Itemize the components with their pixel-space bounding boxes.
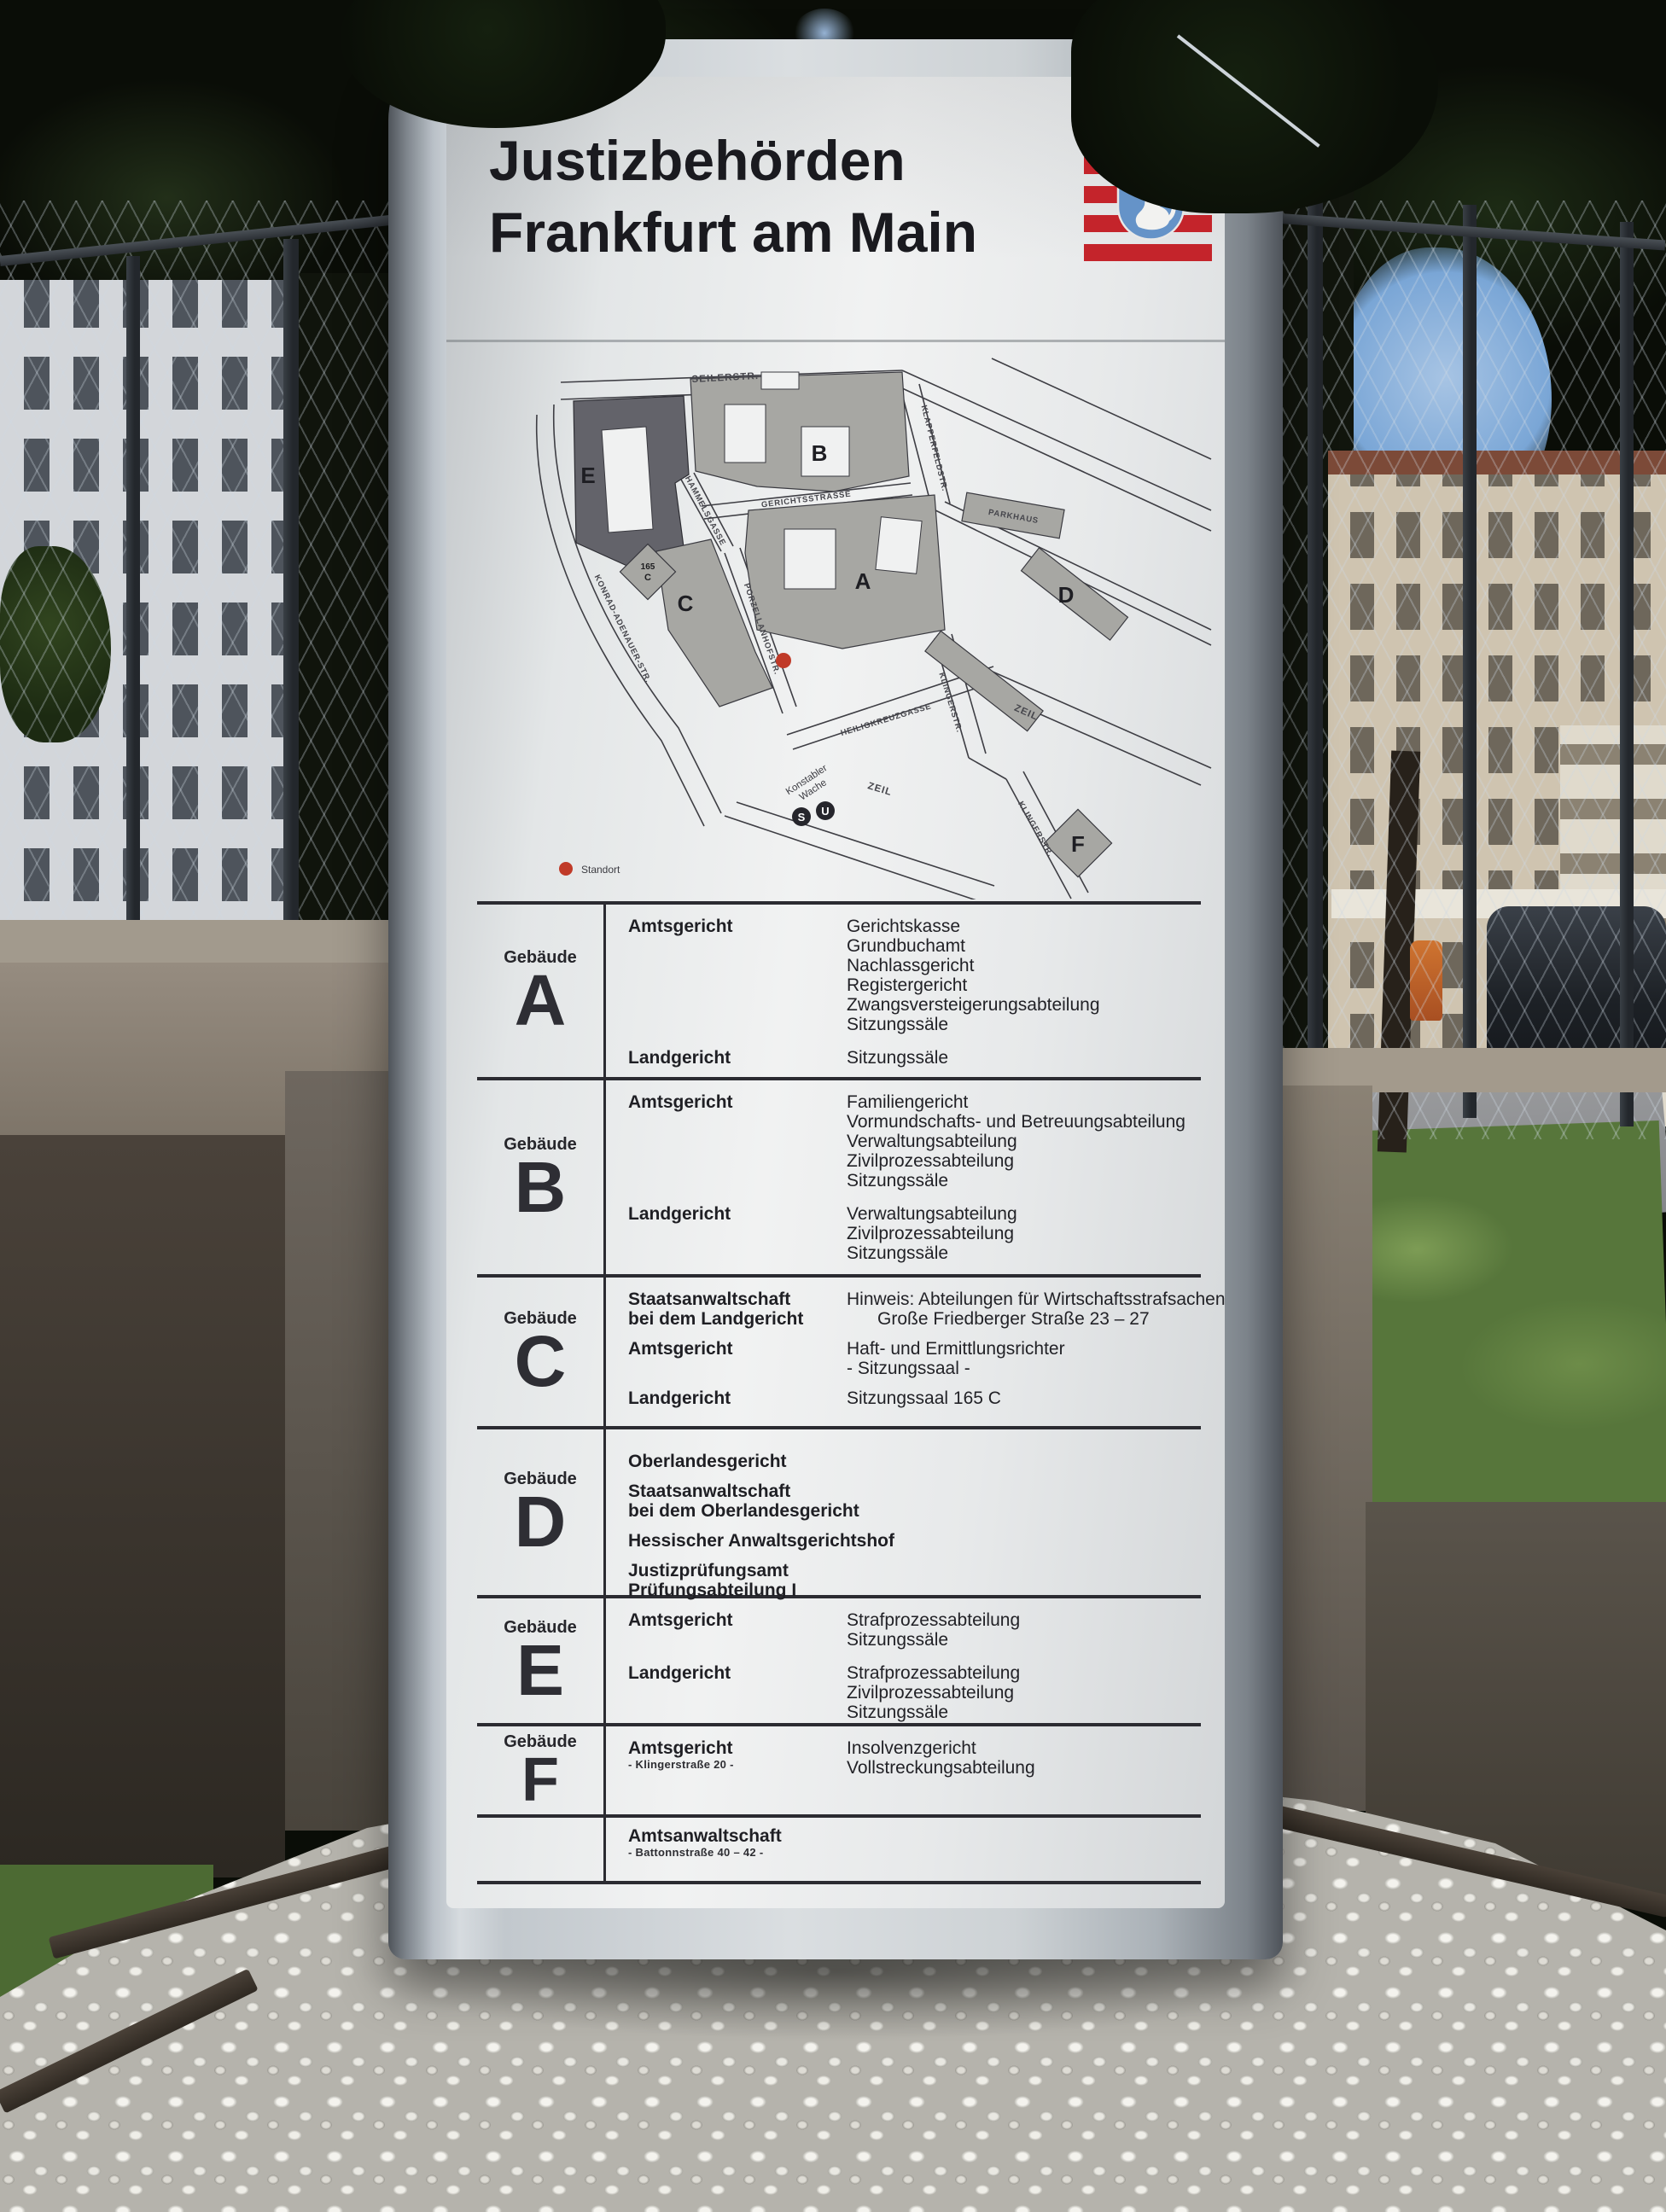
directory-row-f: Gebäude F Amtsgericht - Klingerstraße 20… <box>477 1723 1201 1814</box>
court-address: - Battonnstraße 40 – 42 - <box>628 1846 987 1860</box>
fence-post <box>1620 222 1634 1126</box>
department-item: Zivilprozessabteilung <box>847 1683 1201 1703</box>
department-item: Strafprozessabteilung <box>847 1663 1201 1683</box>
department-item: Sitzungssäle <box>847 1015 1201 1034</box>
site-map: E B A C D F 165 C SEILERSTR. KLAPPERFELD… <box>501 348 1213 899</box>
legend-standort-dot <box>559 862 573 876</box>
department-item: Strafprozessabteilung <box>847 1610 1201 1630</box>
court-label: Staatsanwaltschaft <box>628 1481 847 1501</box>
building-letter: D <box>515 1489 567 1555</box>
building-letter: A <box>515 968 567 1033</box>
directory-row-a: Gebäude A Amtsgericht Gerichtskasse Grun… <box>477 901 1201 1077</box>
department-item: - Sitzungssaal - <box>847 1359 1226 1378</box>
court-label: Amtsgericht <box>628 1092 847 1112</box>
map-street-klapperfeldstr: KLAPPERFELDSTR. <box>919 405 950 492</box>
building-letter: F <box>521 1752 559 1808</box>
court-label: Amtsanwaltschaft <box>628 1826 987 1846</box>
legend-standort-label: Standort <box>581 864 620 876</box>
department-item: Vollstreckungsabteilung <box>847 1758 1201 1778</box>
department-item: Sitzungssäle <box>847 1048 1201 1068</box>
map-label-b: B <box>812 440 828 466</box>
building-letter: E <box>516 1638 564 1703</box>
court-address: - Klingerstraße 20 - <box>628 1758 847 1772</box>
court-label: Amtsgericht <box>628 1738 847 1758</box>
department-item: Insolvenzgericht <box>847 1738 1201 1758</box>
department-item: Vormundschafts- und Betreuungsabteilung <box>847 1112 1201 1132</box>
department-item: Registergericht <box>847 975 1201 995</box>
department-item: Sitzungssaal 165 C <box>847 1388 1226 1408</box>
building-letter-cell <box>477 1818 606 1881</box>
department-item: Sitzungssäle <box>847 1243 1201 1263</box>
department-item: Sitzungssäle <box>847 1171 1201 1190</box>
map-label-f: F <box>1071 831 1085 857</box>
court-label: Amtsgericht <box>628 1339 847 1359</box>
map-street-hammelsgasse: HAMMELSGASSE <box>683 474 727 547</box>
map-label-a: A <box>855 568 871 594</box>
court-label: Landgericht <box>628 1663 847 1683</box>
court-label: bei dem Oberlandesgericht <box>628 1501 847 1521</box>
sign-title-line2: Frankfurt am Main <box>489 196 977 268</box>
map-street-heiligkreuzgasse: HEILIGKREUZGASSE <box>840 701 933 738</box>
court-label: bei dem Landgericht <box>628 1309 847 1329</box>
photo-scene: Justizbehörden Frankfurt am Main HESSEN <box>0 0 1666 2212</box>
department-item: Hinweis: Abteilungen für Wirtschaftsstra… <box>847 1289 1226 1309</box>
building-letter-cell: Gebäude C <box>477 1278 606 1426</box>
building-directory: Gebäude A Amtsgericht Gerichtskasse Grun… <box>477 901 1201 1884</box>
building-letter-cell: Gebäude A <box>477 905 606 1077</box>
building-letter-cell: Gebäude E <box>477 1598 606 1723</box>
building-letter: B <box>515 1155 567 1220</box>
court-label: Landgericht <box>628 1048 847 1068</box>
sign-title: Justizbehörden Frankfurt am Main <box>489 125 977 268</box>
court-label: Amtsgericht <box>628 1610 847 1630</box>
department-item: Familiengericht <box>847 1092 1201 1112</box>
building-letter: C <box>515 1329 567 1394</box>
svg-text:S: S <box>798 811 806 824</box>
department-item: Zwangsversteigerungsabteilung <box>847 995 1201 1015</box>
standort-dot <box>776 653 791 668</box>
court-label: Landgericht <box>628 1204 847 1224</box>
directory-row-e: Gebäude E Amtsgericht Strafprozessabteil… <box>477 1595 1201 1723</box>
panel-seam <box>446 340 1225 342</box>
directory-row-b: Gebäude B Amtsgericht Familiengericht Vo… <box>477 1077 1201 1274</box>
court-label: Staatsanwaltschaft <box>628 1289 847 1309</box>
department-item: Zivilprozessabteilung <box>847 1224 1201 1243</box>
court-label: Landgericht <box>628 1388 847 1408</box>
department-item: Nachlassgericht <box>847 956 1201 975</box>
map-label-165c: C <box>644 573 651 583</box>
department-item: Zivilprozessabteilung <box>847 1151 1201 1171</box>
directory-row-d: Gebäude D Oberlandesgericht Staatsanwalt… <box>477 1426 1201 1595</box>
map-label-e: E <box>580 463 595 488</box>
department-item: Verwaltungsabteilung <box>847 1204 1201 1224</box>
department-item: Verwaltungsabteilung <box>847 1132 1201 1151</box>
concrete-wall <box>0 1135 285 1877</box>
building-letter-cell: Gebäude D <box>477 1429 606 1595</box>
svg-text:U: U <box>821 805 829 818</box>
sign-title-line1: Justizbehörden <box>489 125 977 196</box>
department-item: Haft- und Ermittlungsrichter <box>847 1339 1226 1359</box>
station-konstabler-wache: Konstabler Wache <box>784 763 836 807</box>
map-label-d: D <box>1058 582 1075 608</box>
department-item: Sitzungssäle <box>847 1703 1201 1722</box>
department-item: Sitzungssäle <box>847 1630 1201 1650</box>
map-label-165: 165 <box>641 562 655 572</box>
department-item: Große Friedberger Straße 23 – 27 <box>847 1309 1226 1329</box>
map-building-d <box>1022 548 1128 640</box>
building-letter-cell: Gebäude F <box>477 1726 606 1814</box>
map-building-b <box>690 372 909 492</box>
directory-row-amtsanwaltschaft: Amtsanwaltschaft - Battonnstraße 40 – 42… <box>477 1814 1201 1881</box>
department-item: Gerichtskasse <box>847 917 1201 936</box>
building-letter-cell: Gebäude B <box>477 1080 606 1274</box>
map-street-zeil: ZEIL <box>866 781 894 798</box>
sign-face: Justizbehörden Frankfurt am Main HESSEN <box>446 77 1225 1908</box>
fence-post <box>1463 205 1477 1118</box>
court-label: Oberlandesgericht <box>628 1452 847 1471</box>
fence-post <box>1308 196 1323 1109</box>
directory-row-c: Gebäude C Staatsanwaltschaft bei dem Lan… <box>477 1274 1201 1426</box>
court-label: Prüfungsabteilung I <box>628 1580 847 1600</box>
sign-pylon: Justizbehörden Frankfurt am Main HESSEN <box>388 39 1283 1959</box>
court-label: Hessischer Anwaltsgerichtshof <box>628 1531 847 1551</box>
map-street-klingerstr: KLINGERSTR. <box>1016 800 1055 859</box>
court-label: Justizprüfungsamt <box>628 1561 847 1580</box>
department-item: Grundbuchamt <box>847 936 1201 956</box>
court-label: Amtsgericht <box>628 917 847 936</box>
map-label-c: C <box>678 591 694 616</box>
